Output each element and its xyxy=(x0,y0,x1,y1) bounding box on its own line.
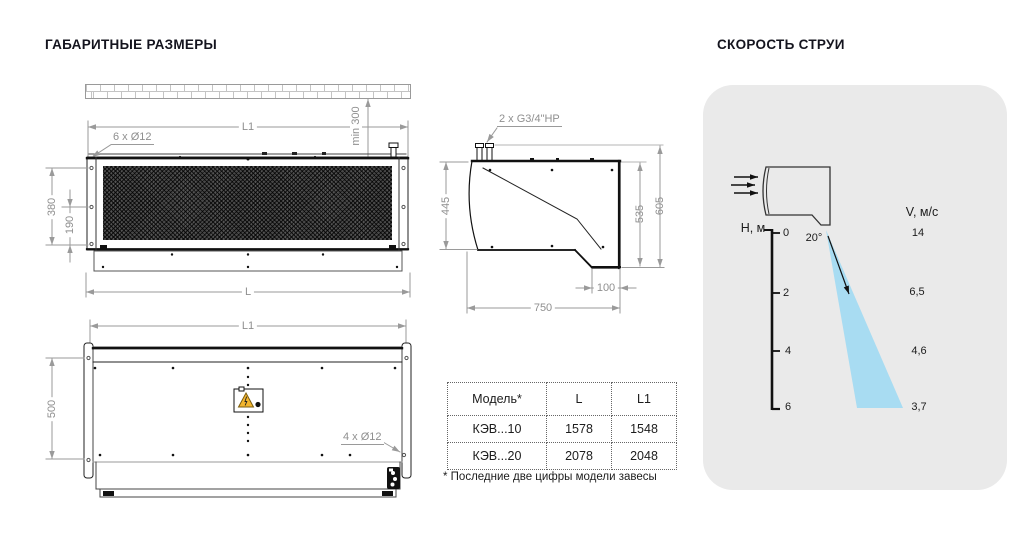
intake-grille-texture xyxy=(103,166,392,240)
section-title-dimensions: ГАБАРИТНЫЕ РАЗМЕРЫ xyxy=(45,37,217,52)
leader-g34 xyxy=(487,128,497,142)
section-title-jet-velocity: СКОРОСТЬ СТРУИ xyxy=(717,37,845,52)
side-view-drawing xyxy=(440,128,664,313)
dim-label-605: 605 xyxy=(654,194,666,218)
table-footnote: * Последние две цифры модели завесы xyxy=(443,471,657,483)
h-tick-0: 0 xyxy=(783,227,789,239)
dim-label-380: 380 xyxy=(46,195,58,219)
h-tick-2: 2 xyxy=(783,287,789,299)
leader-4xd12 xyxy=(383,442,400,452)
side-pipe-fittings xyxy=(486,144,494,148)
dim-label-750: 750 xyxy=(531,302,555,314)
table-row: КЭВ...20 2078 2048 xyxy=(448,443,677,470)
dim-label-500: 500 xyxy=(46,397,58,421)
callout-g34: 2 x G3/4"НР xyxy=(497,113,562,127)
callout-4xd12: 4 x Ø12 xyxy=(341,431,384,445)
jet-velocity-panel xyxy=(703,85,1007,490)
side-internal-edge xyxy=(483,168,601,249)
bottom-end-cap-left xyxy=(84,343,93,478)
warning-triangle-icon xyxy=(239,393,254,407)
table-row: КЭВ...10 1578 1548 xyxy=(448,416,677,443)
dim-label-l1-front: L1 xyxy=(239,121,257,133)
dim-label-100: 100 xyxy=(594,282,618,294)
cable-entry-component xyxy=(387,467,400,489)
table-header-l1: L1 xyxy=(612,383,677,416)
table-header-row: Модель* L L1 xyxy=(448,383,677,416)
datasheet-page: { "titles": { "left": "ГАБАРИТНЫЕ РАЗМЕР… xyxy=(0,0,1031,536)
leader-6xd12 xyxy=(92,144,112,157)
velocity-value-4: 4,6 xyxy=(911,345,926,357)
table-header-model: Модель* xyxy=(448,383,547,416)
dim-label-l1-bottom: L1 xyxy=(239,320,257,332)
dim-label-min300: min 300 xyxy=(350,103,362,148)
bottom-end-cap-right xyxy=(402,343,411,478)
wall-hatch-strip xyxy=(85,84,411,99)
table-header-l: L xyxy=(547,383,612,416)
model-dimensions-table: Модель* L L1 КЭВ...10 1578 1548 КЭВ...20… xyxy=(447,382,677,470)
dim-label-445: 445 xyxy=(440,194,452,218)
bottom-view-drawing xyxy=(46,320,411,497)
dim-label-190: 190 xyxy=(64,213,76,237)
table-cell-l: 1578 xyxy=(547,416,612,443)
table-cell-l: 2078 xyxy=(547,443,612,470)
side-body-outline xyxy=(469,161,620,268)
table-cell-l1: 2048 xyxy=(612,443,677,470)
velocity-value-2: 6,5 xyxy=(909,286,924,298)
h-axis-label: Н, м xyxy=(741,221,766,235)
v-axis-label: V, м/с xyxy=(906,205,938,219)
jet-angle-label: 20° xyxy=(806,232,823,244)
table-cell-model: КЭВ...20 xyxy=(448,443,547,470)
warning-label xyxy=(234,387,263,412)
velocity-value-0: 14 xyxy=(912,227,924,239)
table-cell-l1: 1548 xyxy=(612,416,677,443)
table-cell-model: КЭВ...10 xyxy=(448,416,547,443)
front-lower-panel xyxy=(94,251,402,271)
callout-6xd12: 6 x Ø12 xyxy=(111,131,154,145)
dim-label-l: L xyxy=(242,286,254,298)
dim-label-535: 535 xyxy=(634,202,646,226)
front-pipe-fitting xyxy=(389,143,398,148)
h-tick-4: 4 xyxy=(785,345,791,357)
velocity-value-6: 3,7 xyxy=(911,401,926,413)
h-tick-6: 6 xyxy=(785,401,791,413)
